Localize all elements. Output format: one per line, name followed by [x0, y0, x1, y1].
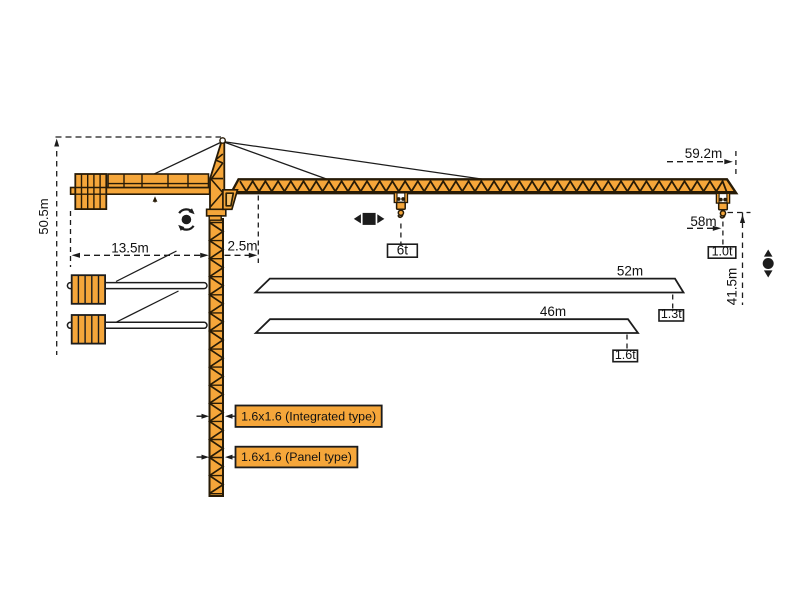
svg-text:1.6x1.6 (Integrated type): 1.6x1.6 (Integrated type) — [241, 410, 376, 424]
svg-text:1.0t: 1.0t — [712, 244, 733, 258]
svg-text:6t: 6t — [397, 242, 409, 257]
svg-text:13.5m: 13.5m — [111, 240, 149, 255]
svg-text:52m: 52m — [617, 263, 643, 278]
svg-text:1.3t: 1.3t — [661, 307, 682, 321]
svg-text:59.2m: 59.2m — [685, 146, 723, 161]
svg-text:2.5m: 2.5m — [227, 239, 257, 254]
svg-text:41.5m: 41.5m — [724, 268, 739, 306]
svg-text:50.5m: 50.5m — [36, 198, 51, 234]
svg-text:1.6x1.6 (Panel type): 1.6x1.6 (Panel type) — [241, 450, 352, 464]
svg-text:1.6t: 1.6t — [615, 348, 636, 362]
svg-text:58m: 58m — [690, 214, 716, 229]
svg-text:46m: 46m — [540, 304, 566, 319]
